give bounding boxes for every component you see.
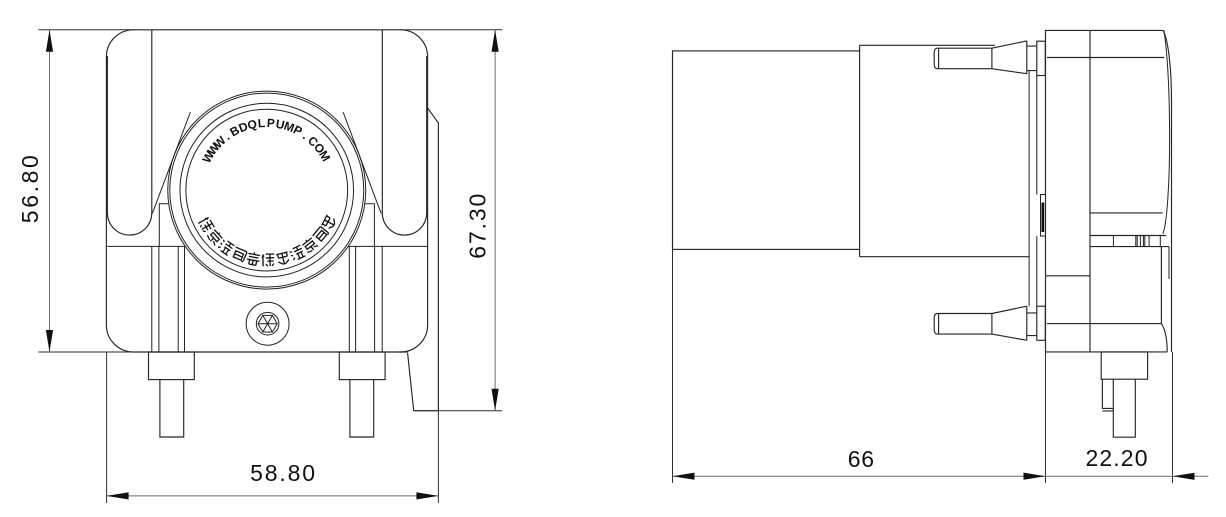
svg-text:L: L <box>257 116 265 131</box>
svg-text:67.30: 67.30 <box>465 194 491 259</box>
svg-text:58.80: 58.80 <box>250 460 315 486</box>
svg-text:66: 66 <box>848 446 874 472</box>
svg-text:22.20: 22.20 <box>1086 445 1148 471</box>
svg-text:56.80: 56.80 <box>17 155 43 223</box>
